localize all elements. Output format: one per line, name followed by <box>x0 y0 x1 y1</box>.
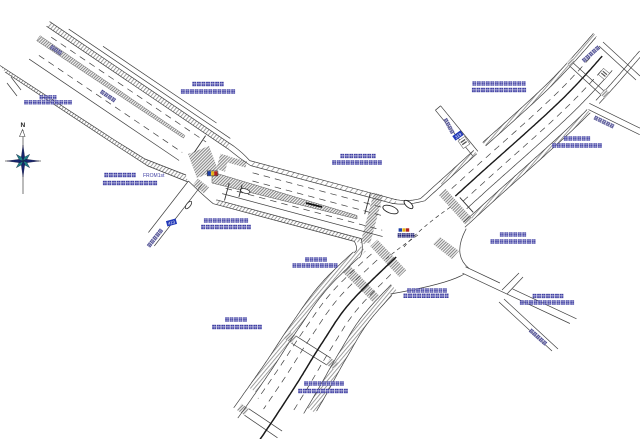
svg-text:FROM1st: FROM1st <box>143 173 165 179</box>
svg-text:N: N <box>21 122 26 129</box>
